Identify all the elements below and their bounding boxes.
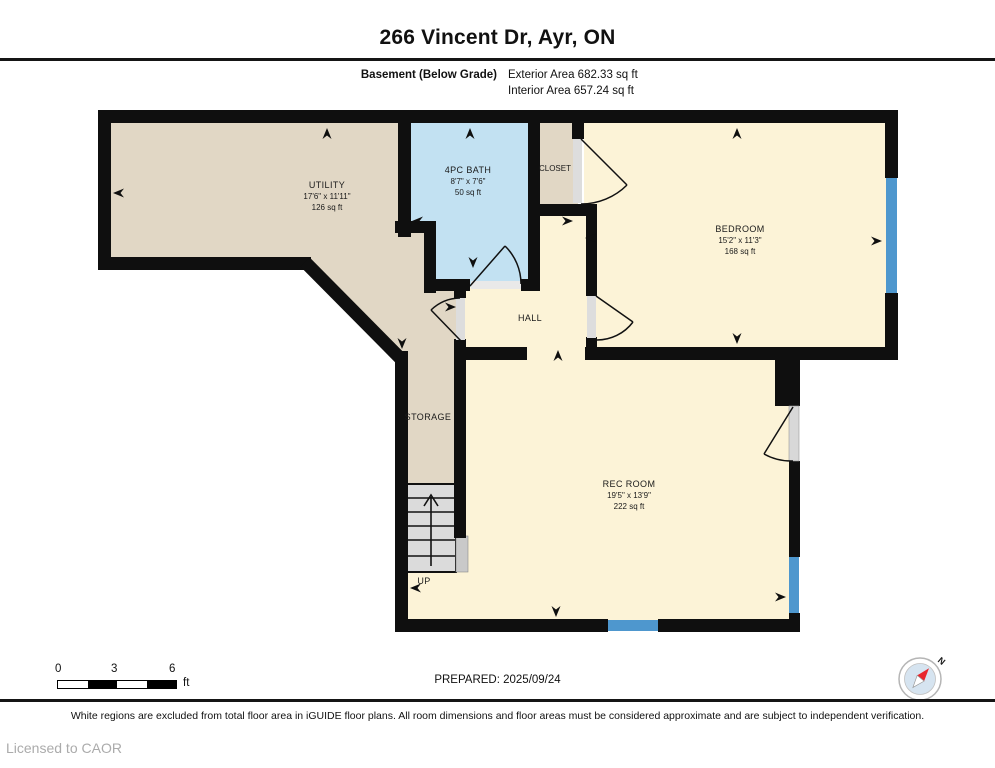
wall-rec-right-a	[789, 461, 800, 557]
rec-room-area: 222 sq ft	[614, 502, 645, 511]
rec-room-floor	[460, 351, 794, 627]
page-title: 266 Vincent Dr, Ayr, ON	[0, 26, 995, 50]
disclaimer-text: White regions are excluded from total fl…	[0, 710, 995, 722]
utility-area: 126 sq ft	[312, 203, 343, 212]
stairs-up-label: UP	[417, 576, 430, 586]
header-divider	[0, 58, 995, 61]
wall-bottom-b	[658, 619, 800, 632]
rec-exterior-door-panel	[789, 406, 799, 461]
wall-storage-right	[454, 339, 466, 487]
under-stairs-floor	[400, 570, 484, 627]
exterior-area: Exterior Area 682.33 sq ft	[508, 69, 638, 81]
wall-bath-right	[528, 110, 540, 291]
bath-door-jamb	[471, 281, 521, 289]
utility-floor	[104, 116, 404, 264]
wall-bottom-a	[395, 619, 608, 632]
rec-room-label: REC ROOM	[603, 479, 656, 489]
wall-top	[98, 110, 898, 123]
wall-rec-right-b	[789, 613, 800, 632]
bedroom-window	[886, 178, 897, 293]
prepared-date: PREPARED: 2025/09/24	[0, 674, 995, 686]
footer-divider	[0, 699, 995, 702]
wall-hall-left-stub	[454, 279, 466, 298]
rec-room-side-window	[789, 557, 799, 613]
wall-bath-left	[398, 110, 411, 237]
stair-handrail-stub	[456, 536, 468, 572]
utility-dims: 17'6" x 11'11"	[303, 192, 350, 201]
compass-north-label: N	[936, 655, 947, 667]
hall-right-door-jamb	[587, 296, 596, 338]
wall-hall-bedroom-b	[586, 337, 597, 360]
wall-hall-bottom	[456, 347, 527, 360]
wall-lower-left	[395, 351, 408, 632]
wall-utility-bottom	[98, 257, 311, 270]
utility-label: UTILITY	[309, 180, 345, 190]
room-fills	[104, 116, 893, 627]
license-text: Licensed to CAOR	[6, 740, 122, 756]
storage-label: STORAGE	[405, 412, 452, 422]
rec-room-dims: 19'5" x 13'9"	[607, 491, 651, 500]
bath-dims: 8'7" x 7'6"	[451, 177, 486, 186]
wall-left	[98, 110, 111, 270]
wall-hall-bedroom-a	[586, 210, 597, 296]
floorplan-canvas: UTILITY 17'6" x 11'11" 126 sq ft 4PC BAT…	[0, 0, 995, 768]
interior-area: Interior Area 657.24 sq ft	[508, 85, 634, 97]
hall-nook-floor	[540, 205, 592, 291]
closet-door-jamb	[573, 139, 582, 203]
bedroom-area: 168 sq ft	[725, 247, 756, 256]
floor-label: Basement (Below Grade)	[0, 69, 497, 81]
wall-bedroom-bottom	[585, 347, 898, 360]
wall-closet-right-stub	[572, 110, 584, 139]
wall-bedroom-right-a	[885, 110, 898, 178]
closet-label: CLOSET	[539, 164, 571, 173]
bath-label: 4PC BATH	[445, 165, 492, 175]
hall-label: HALL	[518, 313, 542, 323]
rec-room-bottom-window	[608, 620, 658, 631]
wall-stairs-right	[454, 487, 466, 538]
bath-area: 50 sq ft	[455, 188, 482, 197]
hall-left-door-jamb	[456, 298, 465, 340]
bedroom-dims: 15'2" x 11'3"	[718, 236, 761, 245]
bedroom-label: BEDROOM	[715, 224, 764, 234]
